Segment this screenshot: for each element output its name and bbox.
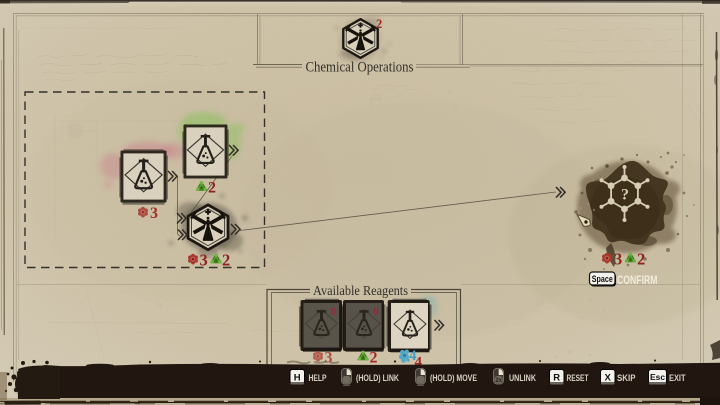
svg-text:EXIT: EXIT (669, 373, 686, 384)
svg-text:Space: Space (592, 274, 613, 284)
svg-text:0: 0 (331, 306, 337, 318)
svg-text:?: ? (621, 186, 629, 203)
svg-text:UNLINK: UNLINK (509, 373, 536, 384)
svg-text:2: 2 (376, 17, 382, 31)
svg-text:0: 0 (373, 306, 379, 318)
svg-text:3: 3 (200, 251, 208, 270)
svg-text:3: 3 (325, 350, 333, 367)
svg-text:2: 2 (222, 251, 230, 270)
svg-text:2: 2 (637, 250, 645, 269)
svg-text:Available Reagents: Available Reagents (313, 284, 408, 299)
svg-text:2x: 2x (495, 378, 502, 384)
svg-text:H: H (294, 372, 301, 383)
svg-text:2: 2 (208, 180, 216, 197)
svg-text:CONFIRM: CONFIRM (617, 273, 658, 287)
svg-text:2: 2 (370, 350, 378, 367)
svg-text:R: R (553, 372, 560, 383)
svg-text:RESET: RESET (567, 373, 589, 384)
svg-text:X: X (605, 372, 612, 383)
svg-text:3: 3 (150, 205, 158, 222)
svg-text:(HOLD) LINK: (HOLD) LINK (356, 373, 399, 384)
svg-text:(HOLD) MOVE: (HOLD) MOVE (430, 373, 477, 384)
svg-text:SKIP: SKIP (617, 373, 636, 384)
svg-text:3: 3 (614, 250, 622, 269)
svg-text:Esc: Esc (650, 372, 665, 382)
svg-text:Chemical Operations: Chemical Operations (306, 60, 414, 76)
svg-text:HELP: HELP (309, 373, 327, 384)
